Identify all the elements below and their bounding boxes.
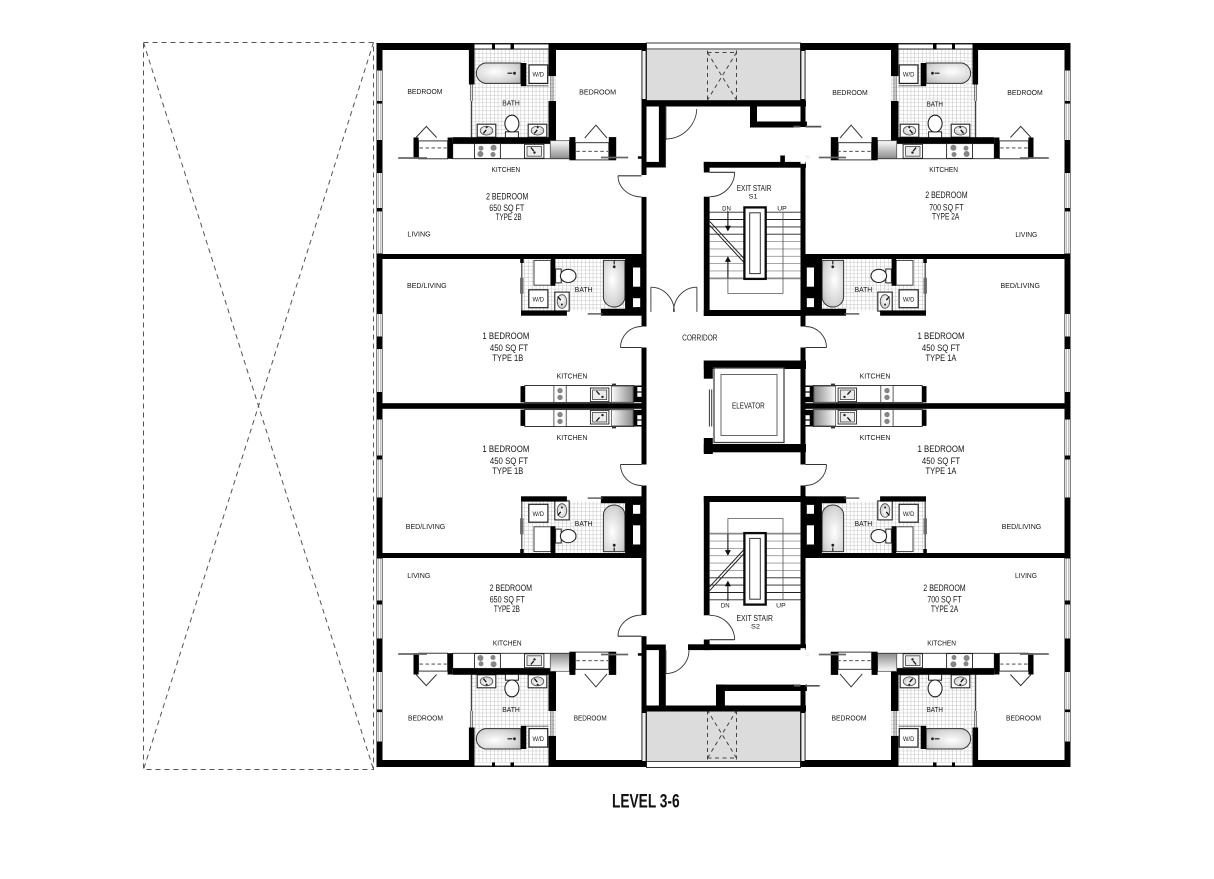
svg-text:KITCHEN: KITCHEN	[557, 433, 588, 442]
svg-text:BED/LIVING: BED/LIVING	[1000, 281, 1040, 290]
svg-text:BED/LIVING: BED/LIVING	[407, 281, 447, 290]
svg-text:CORRIDOR: CORRIDOR	[682, 334, 718, 343]
svg-text:BEDROOM: BEDROOM	[1006, 714, 1041, 723]
svg-text:W/D: W/D	[903, 71, 915, 78]
svg-text:BED/LIVING: BED/LIVING	[1002, 522, 1042, 531]
svg-text:BATH: BATH	[502, 99, 520, 108]
svg-text:BATH: BATH	[855, 519, 873, 528]
svg-text:TYPE 2B: TYPE 2B	[494, 604, 520, 615]
svg-text:BEDROOM: BEDROOM	[832, 714, 867, 723]
svg-text:UP: UP	[777, 205, 787, 212]
svg-text:TYPE 2B: TYPE 2B	[496, 212, 522, 223]
svg-text:KITCHEN: KITCHEN	[493, 638, 522, 647]
svg-text:TYPE 1B: TYPE 1B	[492, 353, 523, 364]
svg-text:TYPE 1B: TYPE 1B	[492, 466, 523, 477]
svg-text:BED/LIVING: BED/LIVING	[406, 522, 446, 531]
svg-text:2 BEDROOM: 2 BEDROOM	[486, 191, 528, 202]
svg-text:KITCHEN: KITCHEN	[492, 165, 521, 174]
svg-text:UP: UP	[776, 603, 786, 610]
svg-text:KITCHEN: KITCHEN	[557, 371, 588, 380]
svg-text:TYPE 1A: TYPE 1A	[926, 466, 957, 477]
svg-text:2 BEDROOM: 2 BEDROOM	[490, 583, 532, 594]
svg-text:W/D: W/D	[533, 511, 545, 518]
svg-text:2 BEDROOM: 2 BEDROOM	[923, 583, 965, 594]
svg-text:W/D: W/D	[903, 511, 915, 518]
svg-text:LIVING: LIVING	[1015, 571, 1037, 580]
svg-text:KITCHEN: KITCHEN	[927, 638, 956, 647]
svg-text:2 BEDROOM: 2 BEDROOM	[925, 190, 967, 201]
svg-text:BATH: BATH	[502, 705, 520, 714]
svg-text:BEDROOM: BEDROOM	[407, 87, 442, 96]
svg-text:DN: DN	[721, 603, 730, 610]
svg-text:1 BEDROOM: 1 BEDROOM	[482, 444, 529, 455]
svg-text:W/D: W/D	[533, 736, 545, 743]
svg-text:W/D: W/D	[533, 297, 545, 304]
svg-text:BATH: BATH	[575, 285, 593, 294]
svg-text:S2: S2	[751, 623, 760, 630]
svg-text:1 BEDROOM: 1 BEDROOM	[918, 331, 965, 342]
svg-text:BATH: BATH	[927, 100, 943, 109]
svg-text:1 BEDROOM: 1 BEDROOM	[482, 331, 529, 342]
svg-text:LEVEL 3-6: LEVEL 3-6	[612, 791, 680, 813]
svg-text:EXIT STAIR: EXIT STAIR	[737, 614, 774, 623]
svg-text:BATH: BATH	[927, 705, 943, 714]
svg-text:EXIT STAIR: EXIT STAIR	[737, 184, 772, 193]
svg-text:KITCHEN: KITCHEN	[860, 371, 891, 380]
svg-text:LIVING: LIVING	[407, 571, 430, 580]
svg-text:S1: S1	[749, 194, 758, 201]
svg-text:BATH: BATH	[855, 285, 873, 294]
svg-text:LIVING: LIVING	[407, 229, 430, 238]
svg-text:BEDROOM: BEDROOM	[408, 714, 443, 723]
svg-text:W/D: W/D	[533, 71, 545, 78]
svg-text:1 BEDROOM: 1 BEDROOM	[918, 444, 965, 455]
svg-text:TYPE 2A: TYPE 2A	[931, 604, 959, 615]
svg-text:W/D: W/D	[903, 736, 915, 743]
svg-text:KITCHEN: KITCHEN	[929, 165, 958, 174]
svg-text:W/D: W/D	[903, 297, 915, 304]
svg-text:TYPE 2A: TYPE 2A	[932, 211, 960, 222]
svg-text:BEDROOM: BEDROOM	[1007, 88, 1043, 97]
svg-text:KITCHEN: KITCHEN	[860, 433, 891, 442]
svg-text:LIVING: LIVING	[1015, 230, 1037, 239]
svg-text:DN: DN	[722, 205, 731, 212]
svg-text:BEDROOM: BEDROOM	[574, 714, 607, 723]
svg-text:BEDROOM: BEDROOM	[832, 88, 868, 97]
svg-text:TYPE 1A: TYPE 1A	[926, 353, 957, 364]
svg-text:BEDROOM: BEDROOM	[579, 87, 616, 96]
svg-text:BATH: BATH	[575, 519, 593, 528]
svg-text:ELEVATOR: ELEVATOR	[732, 402, 765, 411]
